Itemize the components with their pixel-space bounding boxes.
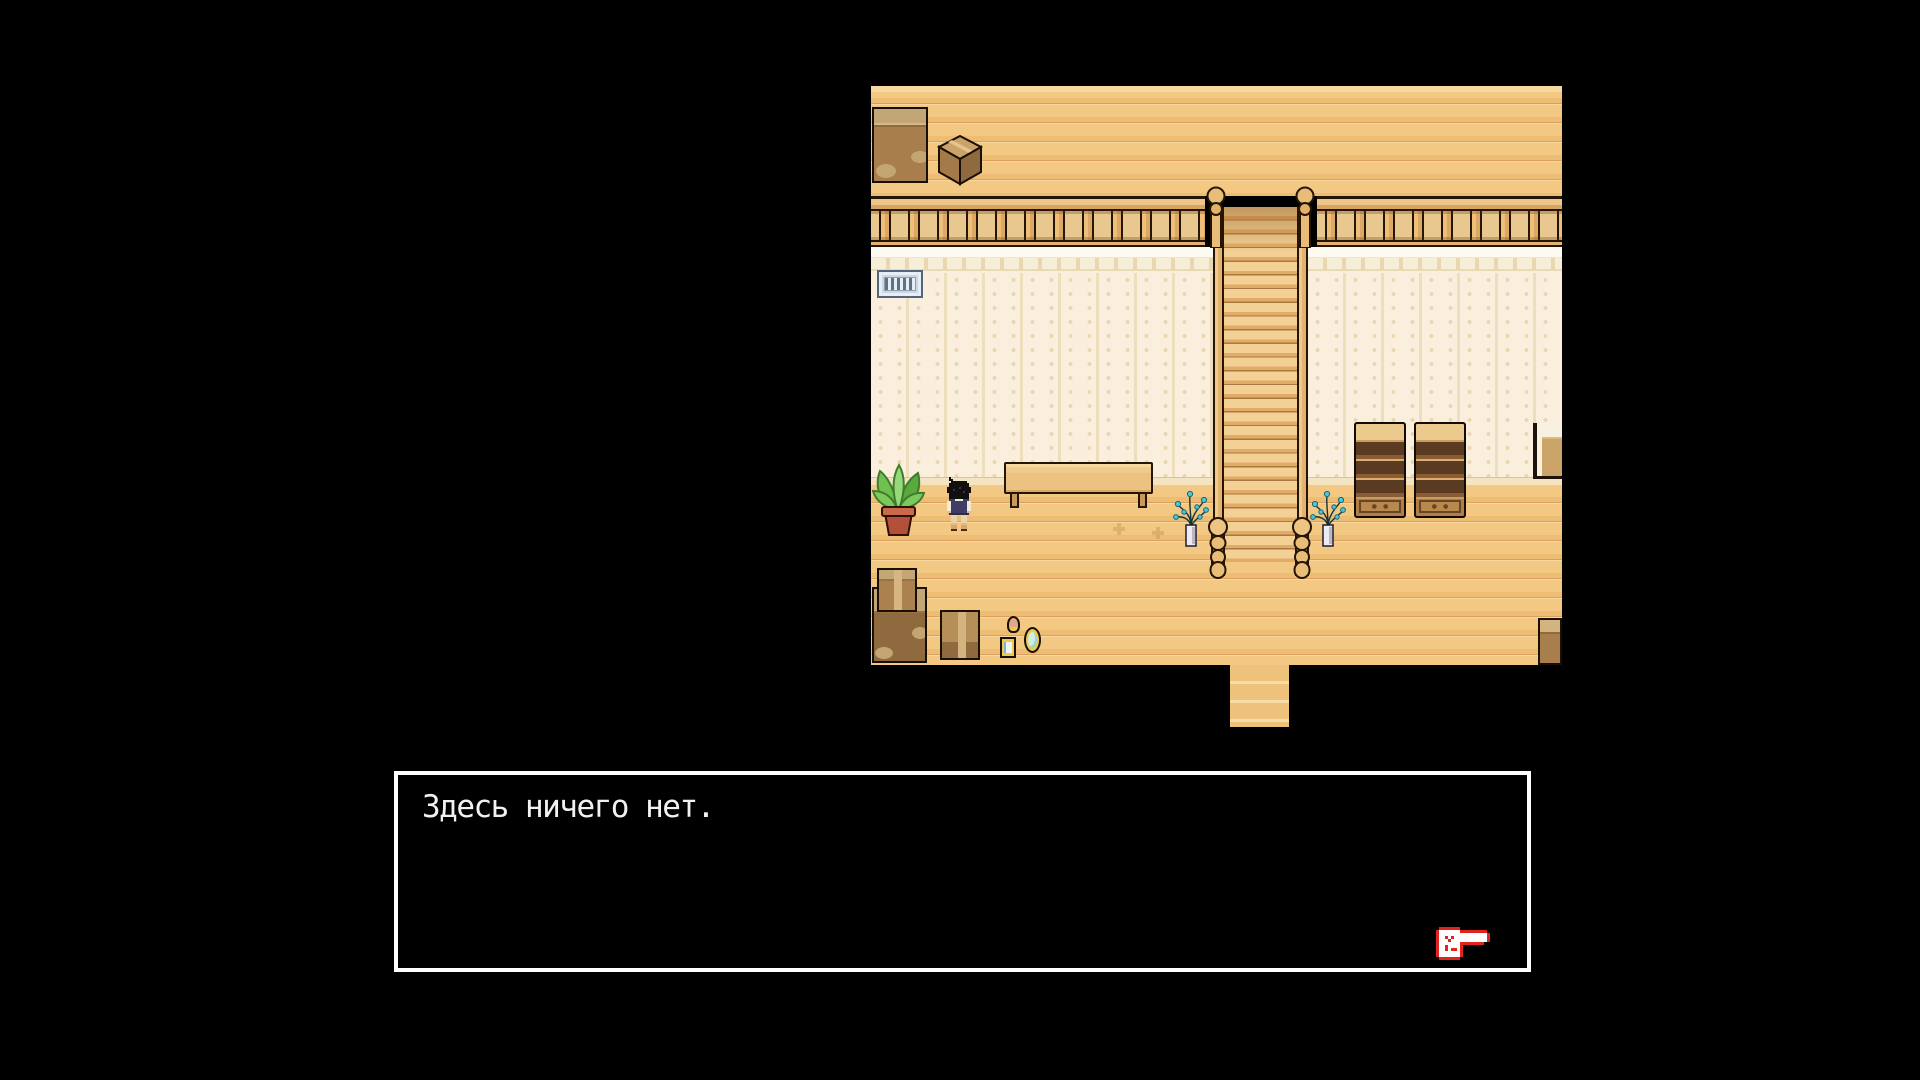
railing-balusters (871, 211, 1205, 240)
bookshelf-drawer (1419, 500, 1461, 513)
stair-railing-left (871, 196, 1205, 247)
dialogue-box[interactable]: Здесь ничего нет. (394, 771, 1531, 972)
cardboard-crate-cube (937, 135, 983, 186)
crate-bottom-right (1538, 618, 1562, 665)
potted-plant (872, 463, 925, 537)
hand-mirror (1024, 627, 1041, 653)
game-viewport[interactable] (871, 86, 1562, 665)
red-pointing-hand-icon (1433, 927, 1490, 960)
stair-railing-right (1317, 196, 1562, 247)
newel-post-finial-right (1292, 186, 1318, 248)
railing-bottom-rail (1317, 240, 1562, 247)
stair-side-rail (1213, 207, 1224, 562)
railing-top-rail (871, 196, 1205, 211)
wall-crown-band (871, 247, 1213, 258)
railing-top-rail (1317, 196, 1562, 211)
cardboard-box (940, 610, 980, 660)
bench-leg (1010, 492, 1019, 508)
photo-frame-picture (1004, 642, 1012, 653)
mirror-glass (1028, 632, 1037, 648)
wall-vent-grate (877, 270, 923, 298)
stair-treads (1224, 207, 1297, 562)
desk-edge (1533, 423, 1562, 479)
wooden-bench (1004, 462, 1153, 508)
wallpaper-frieze (1308, 258, 1562, 271)
dialogue-text: Здесь ничего нет. (422, 789, 714, 825)
vent-slats (884, 277, 916, 291)
bookshelf-right (1414, 422, 1466, 518)
wall-crown-band (1308, 247, 1562, 258)
cardboard-crate-tall (872, 107, 928, 183)
bench-seat (1004, 462, 1153, 494)
bench-leg (1138, 492, 1147, 508)
newel-post-finial-left (1203, 186, 1229, 248)
stair-post-vase-right (1310, 488, 1346, 548)
railing-balusters (1317, 211, 1562, 240)
staircase-down-exit (1230, 665, 1289, 727)
staircase-up (1213, 207, 1308, 562)
egg-ornament (1007, 616, 1020, 633)
bookshelf-drawer (1359, 500, 1401, 513)
bookshelf-left (1354, 422, 1406, 518)
box-stack-small (877, 568, 917, 612)
stair-side-rail (1297, 207, 1308, 562)
photo-frame (1000, 637, 1016, 658)
stair-post-vase-left (1173, 488, 1209, 548)
player-character (941, 477, 977, 533)
railing-bottom-rail (871, 240, 1205, 247)
floor-sparkle (1113, 523, 1125, 535)
floor-sparkle (1152, 527, 1164, 539)
wallpaper (871, 273, 1213, 477)
stair-shadow (1224, 207, 1297, 253)
